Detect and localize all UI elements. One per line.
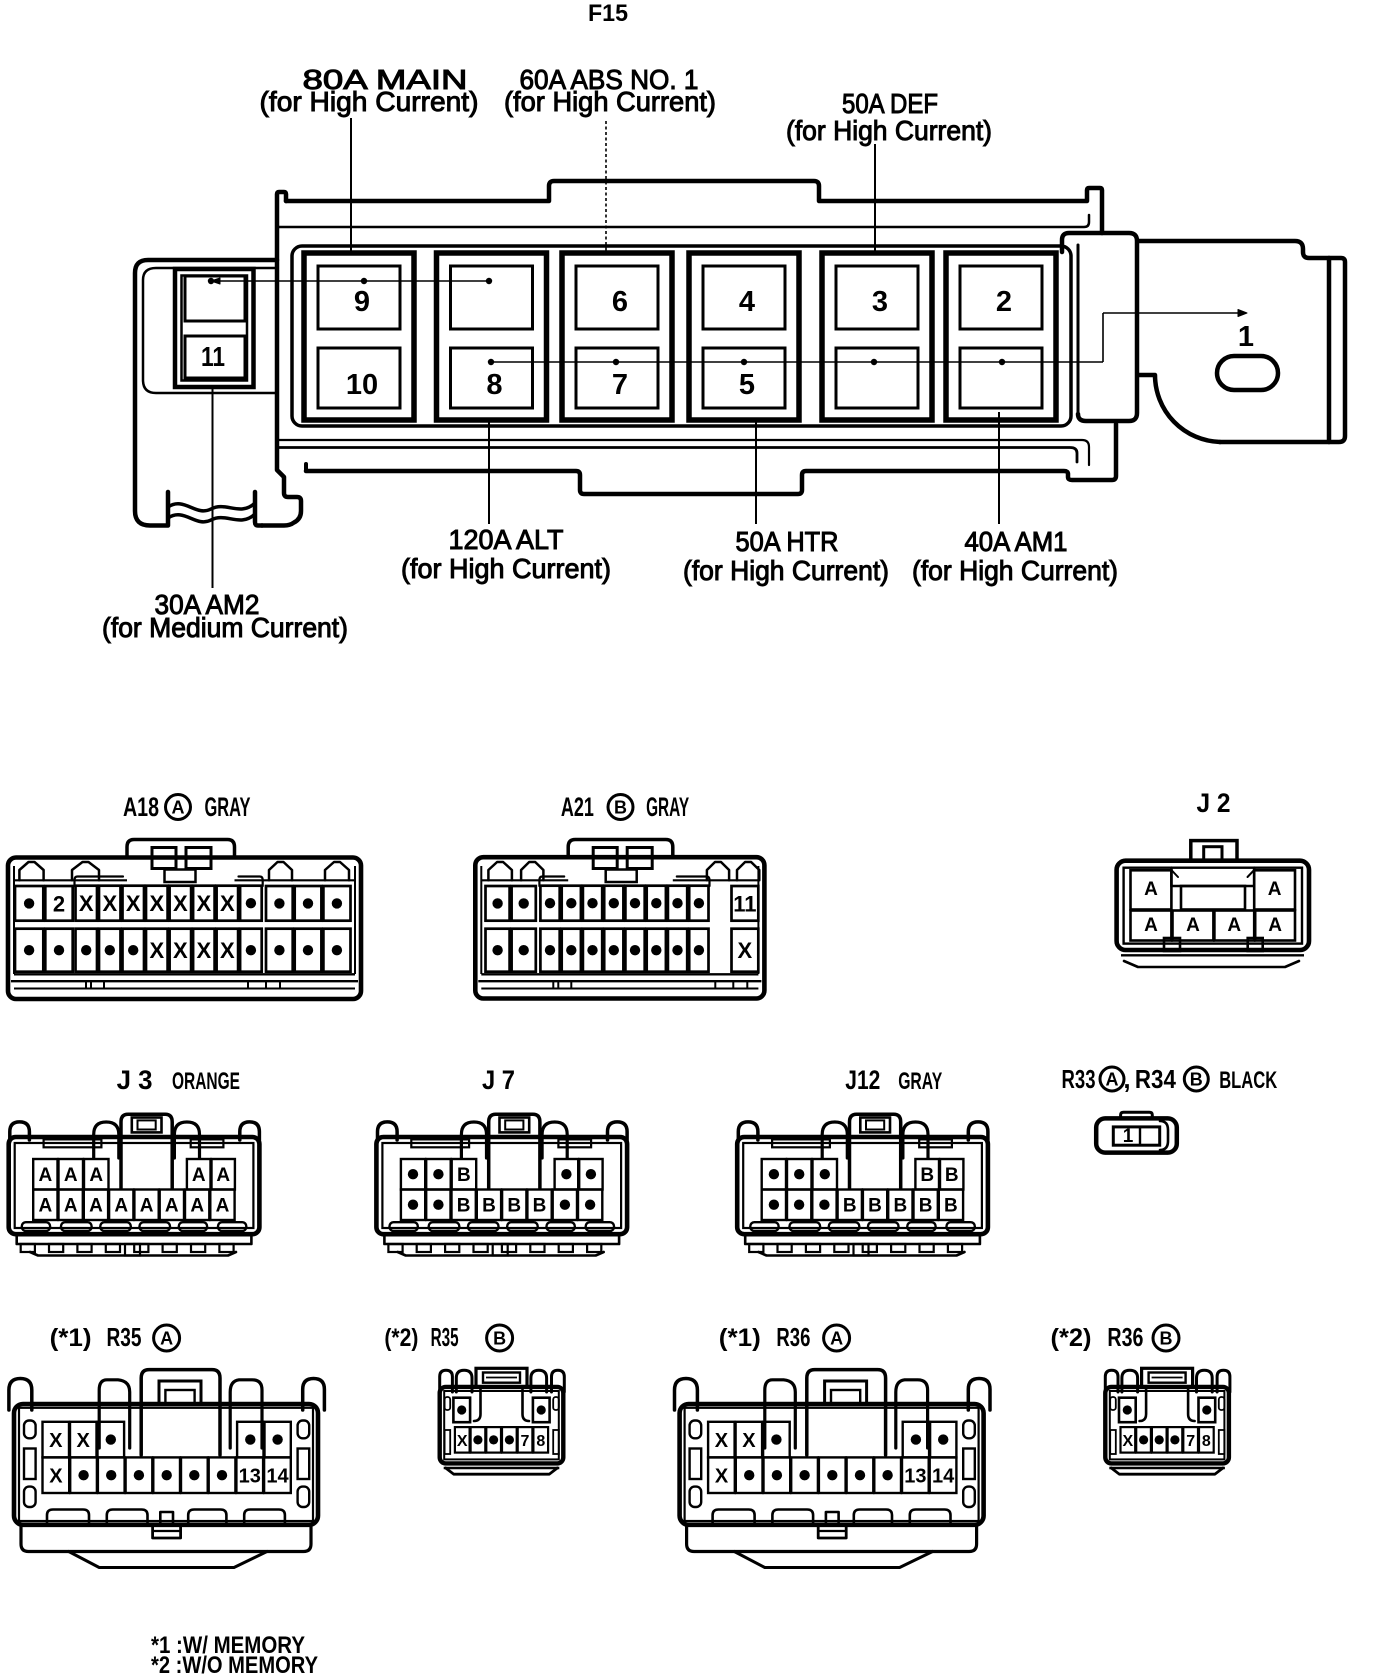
svg-text:2: 2 xyxy=(996,286,1012,318)
svg-text:J 7: J 7 xyxy=(482,1065,515,1095)
svg-text:X: X xyxy=(715,1466,729,1488)
svg-text:1: 1 xyxy=(1238,321,1254,353)
svg-text:B: B xyxy=(457,1196,471,1217)
svg-text:1: 1 xyxy=(1123,1126,1134,1147)
svg-text:A: A xyxy=(1227,915,1241,936)
svg-text:B: B xyxy=(919,1196,933,1217)
svg-text:R34: R34 xyxy=(1135,1064,1176,1094)
svg-text:X: X xyxy=(173,938,188,963)
svg-text:50A HTR: 50A HTR xyxy=(736,526,839,557)
svg-text:A: A xyxy=(830,1329,843,1349)
svg-text:A: A xyxy=(1268,879,1282,900)
svg-text:13: 13 xyxy=(904,1466,926,1488)
svg-text:(*2): (*2) xyxy=(384,1324,418,1352)
svg-text:A: A xyxy=(114,1196,128,1217)
svg-text:B: B xyxy=(843,1196,857,1217)
svg-text:3: 3 xyxy=(872,286,888,318)
svg-text:7: 7 xyxy=(612,369,628,401)
svg-text:F15: F15 xyxy=(588,0,628,27)
svg-text:B: B xyxy=(493,1329,506,1349)
svg-text:(for Medium Current): (for Medium Current) xyxy=(102,612,348,643)
svg-text:J 2: J 2 xyxy=(1197,788,1231,818)
svg-text:B: B xyxy=(945,1165,959,1186)
svg-text:A: A xyxy=(39,1165,53,1186)
svg-text:A: A xyxy=(216,1196,230,1217)
svg-text:X: X xyxy=(77,1430,91,1452)
svg-text:X: X xyxy=(220,891,235,916)
svg-text:7: 7 xyxy=(521,1433,530,1450)
svg-text:(for High Current): (for High Current) xyxy=(683,555,889,586)
svg-text:X: X xyxy=(173,891,188,916)
svg-text:(*1): (*1) xyxy=(50,1324,92,1352)
svg-text:(for High Current): (for High Current) xyxy=(786,115,992,146)
svg-text:B: B xyxy=(457,1165,471,1186)
svg-text:ORANGE: ORANGE xyxy=(172,1068,240,1095)
svg-text:A: A xyxy=(140,1196,154,1217)
svg-text:A: A xyxy=(1106,1070,1119,1090)
svg-text:7: 7 xyxy=(1186,1433,1195,1450)
svg-text:A: A xyxy=(89,1165,103,1186)
svg-text:4: 4 xyxy=(739,286,755,318)
svg-text:X: X xyxy=(149,891,164,916)
svg-text:9: 9 xyxy=(354,286,370,318)
svg-text:GRAY: GRAY xyxy=(205,792,251,822)
svg-text:B: B xyxy=(1190,1070,1203,1090)
svg-text:8: 8 xyxy=(486,369,502,401)
svg-text:,: , xyxy=(1123,1064,1130,1094)
svg-text:X: X xyxy=(196,891,211,916)
svg-text:B: B xyxy=(894,1196,908,1217)
svg-text:A: A xyxy=(160,1329,173,1349)
svg-text:X: X xyxy=(715,1430,729,1452)
svg-text:8: 8 xyxy=(536,1433,545,1450)
svg-text:A: A xyxy=(1144,915,1158,936)
svg-text:A: A xyxy=(192,1165,206,1186)
svg-text:R35: R35 xyxy=(107,1322,142,1352)
svg-text:X: X xyxy=(1122,1433,1133,1450)
svg-text:J12: J12 xyxy=(845,1065,880,1095)
svg-text:5: 5 xyxy=(739,369,755,401)
svg-text:(for High Current): (for High Current) xyxy=(260,86,479,117)
svg-text:8: 8 xyxy=(1202,1433,1211,1450)
svg-text:R35: R35 xyxy=(431,1322,459,1352)
svg-text:X: X xyxy=(79,891,94,916)
svg-text:X: X xyxy=(149,938,164,963)
svg-text:(for High Current): (for High Current) xyxy=(401,553,611,584)
svg-text:A: A xyxy=(89,1196,103,1217)
svg-text:X: X xyxy=(49,1466,63,1488)
svg-text:GRAY: GRAY xyxy=(646,792,689,822)
svg-text:X: X xyxy=(102,891,117,916)
svg-text:B: B xyxy=(920,1165,934,1186)
svg-text:13: 13 xyxy=(239,1466,261,1488)
svg-text:*2 :W/O MEMORY: *2 :W/O MEMORY xyxy=(151,1652,318,1679)
svg-text:A: A xyxy=(39,1196,53,1217)
svg-text:X: X xyxy=(126,891,141,916)
svg-text:X: X xyxy=(49,1430,63,1452)
svg-text:BLACK: BLACK xyxy=(1219,1067,1277,1094)
svg-text:A: A xyxy=(1144,879,1158,900)
svg-text:(for High Current): (for High Current) xyxy=(912,555,1118,586)
svg-text:(*2): (*2) xyxy=(1051,1324,1092,1352)
svg-text:6: 6 xyxy=(612,286,628,318)
svg-text:A: A xyxy=(165,1196,179,1217)
svg-text:X: X xyxy=(220,938,235,963)
svg-text:11: 11 xyxy=(733,891,756,916)
svg-text:GRAY: GRAY xyxy=(898,1068,942,1095)
svg-text:X: X xyxy=(457,1433,468,1450)
svg-text:B: B xyxy=(533,1196,547,1217)
svg-text:B: B xyxy=(507,1196,521,1217)
svg-text:A: A xyxy=(190,1196,204,1217)
svg-text:B: B xyxy=(614,798,627,818)
svg-text:A: A xyxy=(64,1165,78,1186)
svg-text:A: A xyxy=(1268,915,1282,936)
svg-text:J 3: J 3 xyxy=(117,1065,153,1095)
svg-text:A21: A21 xyxy=(561,792,594,822)
svg-text:11: 11 xyxy=(201,341,225,372)
svg-text:R36: R36 xyxy=(1107,1322,1143,1352)
svg-text:(*1): (*1) xyxy=(719,1324,761,1352)
svg-text:B: B xyxy=(944,1196,958,1217)
svg-text:A: A xyxy=(64,1196,78,1217)
svg-text:X: X xyxy=(196,938,211,963)
svg-text:B: B xyxy=(1160,1329,1173,1349)
svg-text:R36: R36 xyxy=(776,1322,810,1352)
svg-text:X: X xyxy=(738,938,753,963)
svg-text:(for High Current): (for High Current) xyxy=(504,86,716,117)
svg-text:14: 14 xyxy=(932,1466,955,1488)
svg-text:B: B xyxy=(482,1196,496,1217)
svg-text:A: A xyxy=(216,1165,230,1186)
svg-text:A: A xyxy=(1186,915,1200,936)
svg-text:R33: R33 xyxy=(1062,1064,1096,1094)
svg-text:2: 2 xyxy=(53,891,65,916)
svg-text:120A ALT: 120A ALT xyxy=(449,524,564,555)
svg-text:10: 10 xyxy=(346,369,378,401)
svg-text:X: X xyxy=(742,1430,756,1452)
svg-text:A: A xyxy=(172,798,185,818)
svg-text:B: B xyxy=(868,1196,882,1217)
svg-text:40A AM1: 40A AM1 xyxy=(965,526,1068,557)
svg-text:A18: A18 xyxy=(123,792,159,822)
svg-text:14: 14 xyxy=(266,1466,289,1488)
